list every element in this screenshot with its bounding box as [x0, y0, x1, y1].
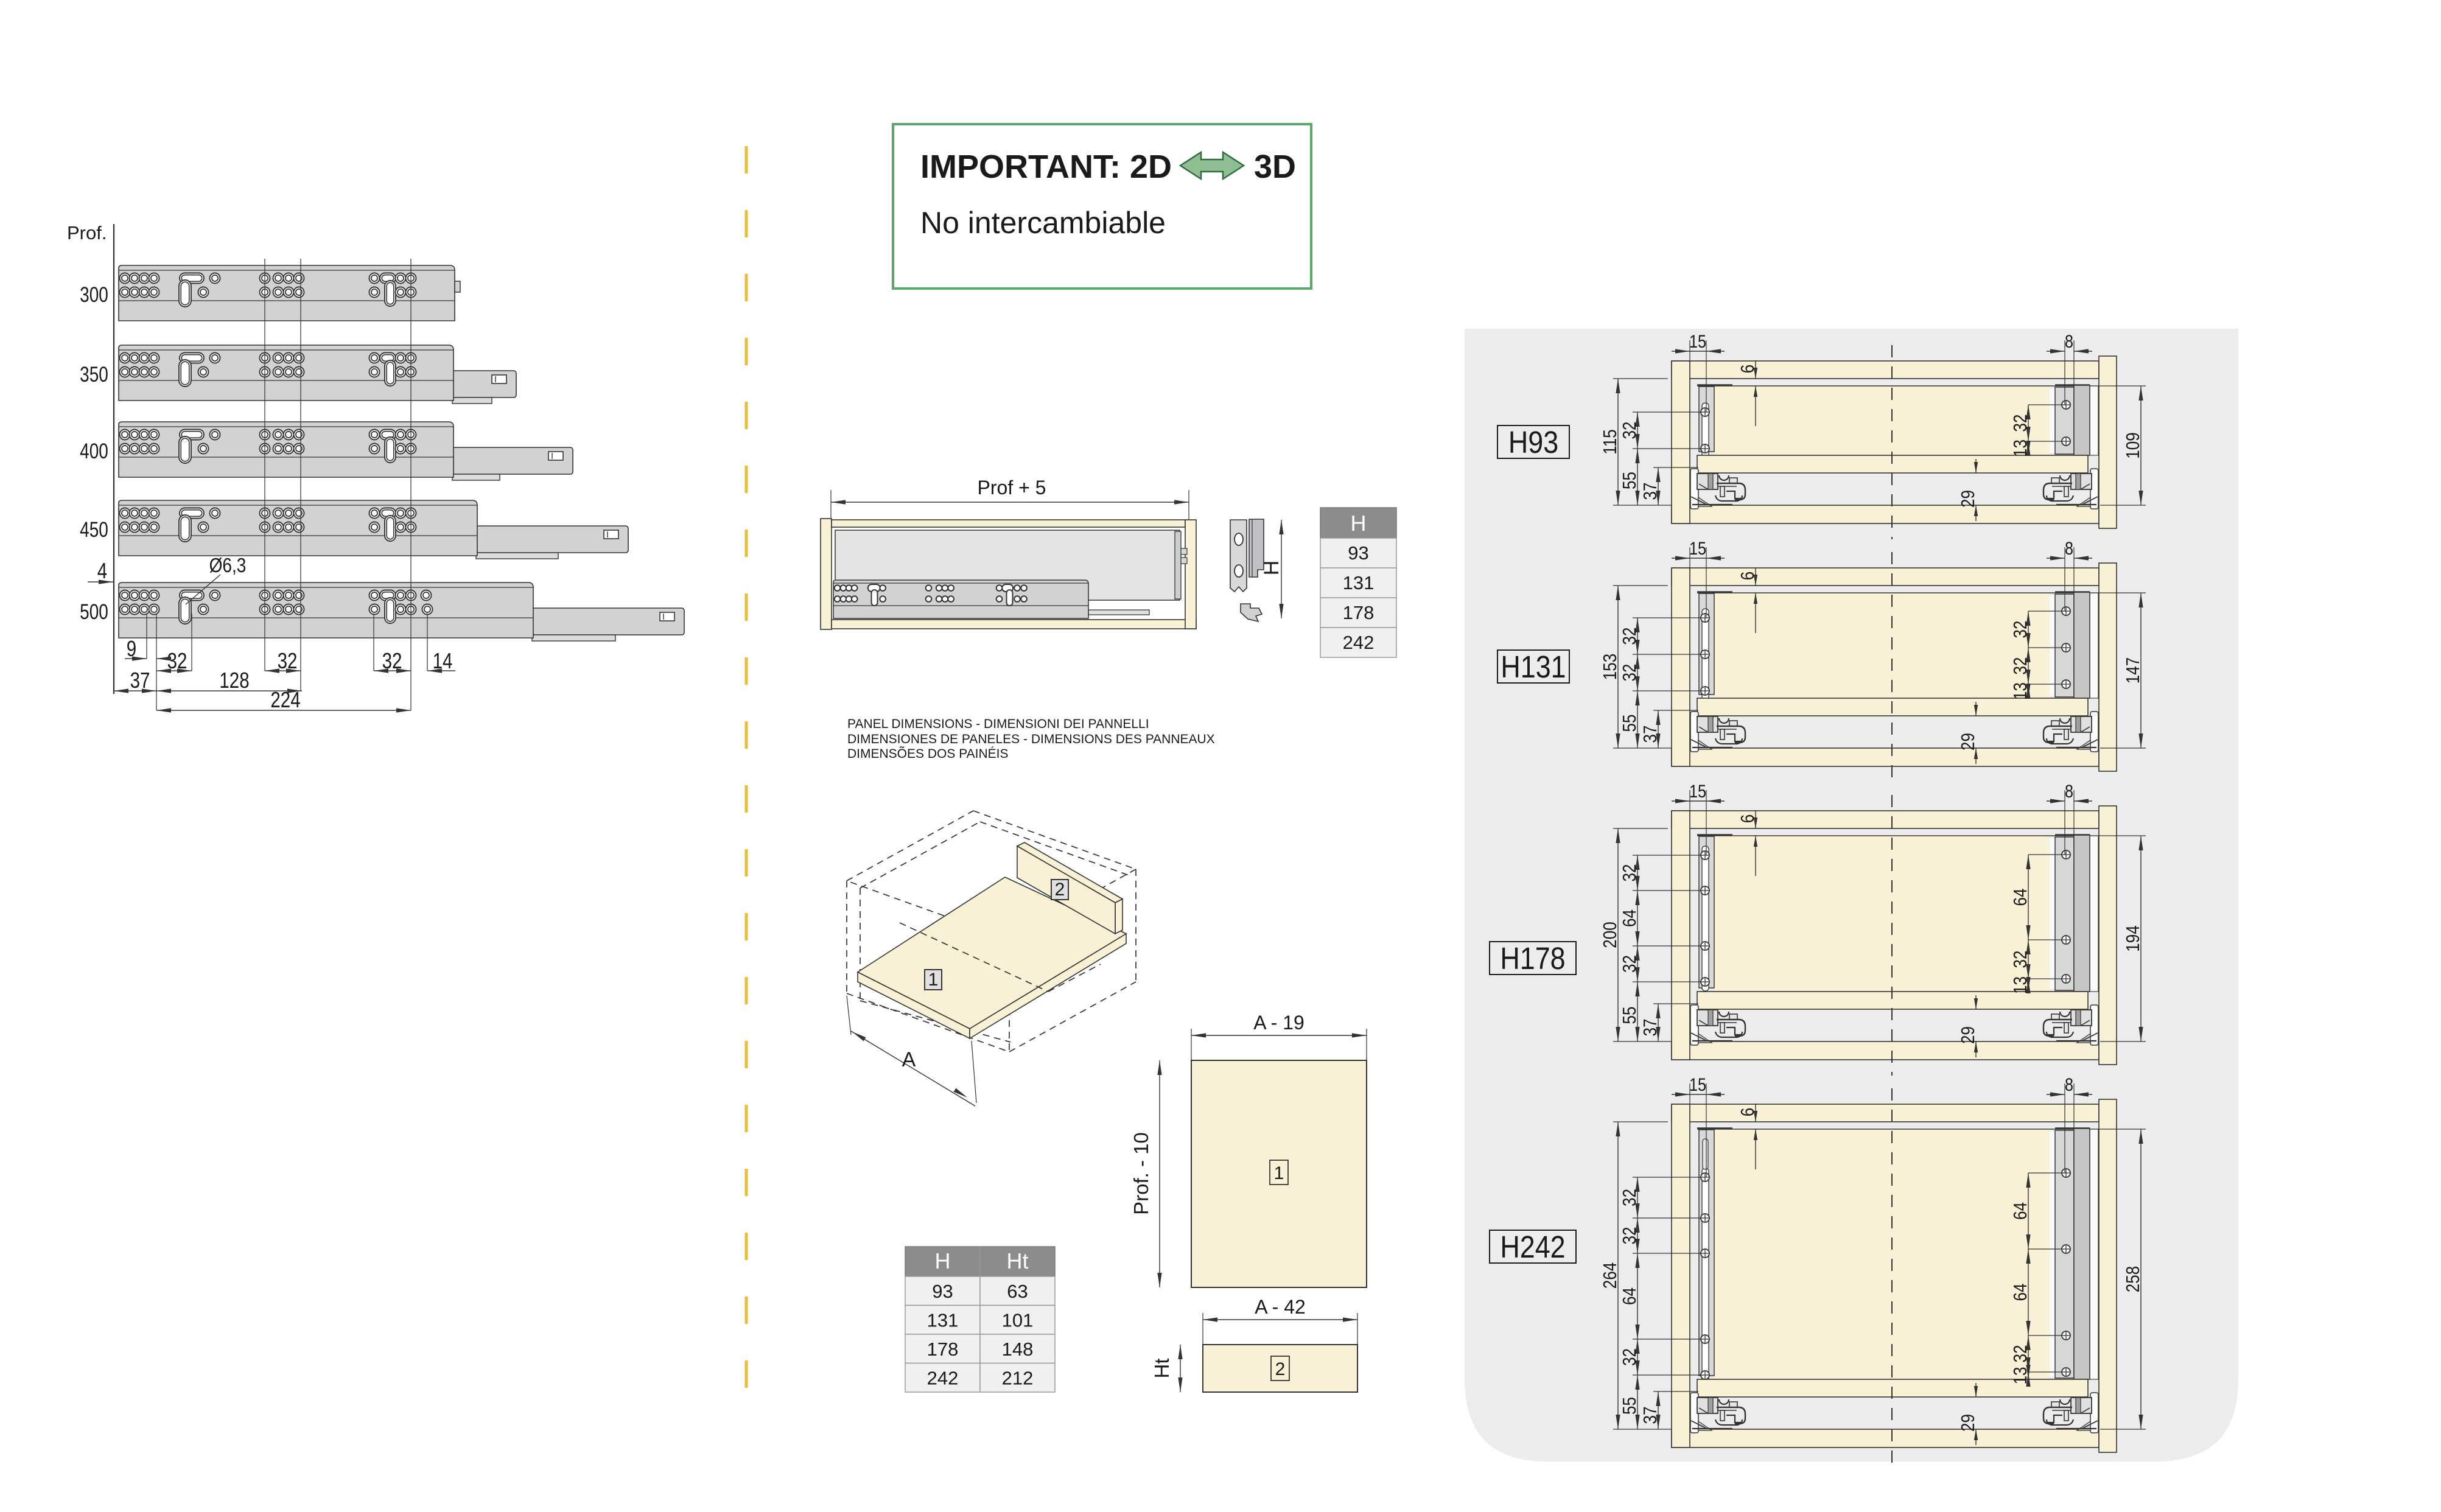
svg-text:64: 64: [2010, 1202, 2031, 1220]
svg-text:148: 148: [1002, 1339, 1034, 1360]
svg-text:55: 55: [1619, 472, 1641, 489]
svg-text:178: 178: [927, 1339, 959, 1360]
svg-text:6: 6: [1737, 365, 1759, 373]
svg-text:15: 15: [1689, 538, 1706, 559]
svg-text:13: 13: [2010, 682, 2031, 700]
svg-text:93: 93: [932, 1281, 953, 1302]
svg-text:Ht: Ht: [1150, 1359, 1173, 1379]
svg-text:32: 32: [2010, 415, 2031, 432]
svg-text:H93: H93: [1508, 425, 1558, 460]
svg-text:Ø6,3: Ø6,3: [209, 555, 247, 577]
svg-text:32: 32: [1619, 1189, 1641, 1206]
svg-text:4: 4: [97, 558, 107, 583]
svg-text:32: 32: [278, 648, 298, 673]
svg-text:153: 153: [1600, 654, 1621, 680]
svg-text:242: 242: [927, 1368, 959, 1389]
svg-text:93: 93: [1348, 542, 1368, 564]
svg-text:131: 131: [927, 1310, 959, 1331]
svg-text:32: 32: [2010, 621, 2031, 639]
svg-text:264: 264: [1600, 1262, 1621, 1289]
svg-text:63: 63: [1007, 1281, 1028, 1302]
svg-text:29: 29: [1958, 1414, 1979, 1432]
svg-text:6: 6: [1737, 1108, 1759, 1116]
svg-text:2: 2: [1055, 880, 1065, 900]
svg-text:DIMENSÕES DOS PAINÉIS: DIMENSÕES DOS PAINÉIS: [847, 746, 1009, 761]
svg-text:A - 42: A - 42: [1255, 1296, 1306, 1318]
svg-text:Prof. - 10: Prof. - 10: [1130, 1132, 1152, 1215]
svg-text:500: 500: [80, 600, 108, 624]
svg-text:8: 8: [2065, 781, 2073, 802]
svg-text:224: 224: [270, 687, 300, 712]
svg-text:2: 2: [1275, 1359, 1286, 1379]
svg-text:H: H: [935, 1248, 951, 1273]
svg-text:H242: H242: [1500, 1230, 1565, 1264]
svg-text:450: 450: [80, 517, 108, 542]
svg-text:H: H: [1351, 511, 1367, 536]
svg-text:1: 1: [1274, 1163, 1284, 1183]
svg-text:14: 14: [433, 648, 453, 673]
svg-text:32: 32: [167, 648, 187, 673]
svg-text:300: 300: [80, 282, 108, 307]
svg-text:15: 15: [1689, 1074, 1706, 1095]
svg-text:194: 194: [2123, 925, 2144, 951]
svg-text:6: 6: [1737, 814, 1759, 823]
svg-text:32: 32: [1619, 955, 1641, 973]
svg-text:Ht: Ht: [1007, 1248, 1029, 1273]
svg-text:200: 200: [1600, 922, 1621, 948]
svg-text:8: 8: [2065, 1074, 2073, 1095]
svg-text:147: 147: [2123, 657, 2144, 684]
svg-text:32: 32: [1619, 664, 1641, 682]
svg-text:8: 8: [2065, 331, 2073, 352]
svg-text:H: H: [1260, 561, 1283, 576]
svg-text:109: 109: [2123, 432, 2144, 458]
svg-text:101: 101: [1002, 1310, 1034, 1331]
svg-text:32: 32: [1619, 864, 1641, 882]
svg-text:37: 37: [1640, 726, 1661, 743]
svg-text:H131: H131: [1501, 650, 1566, 684]
svg-text:29: 29: [1958, 733, 1979, 751]
svg-text:H178: H178: [1500, 942, 1565, 976]
svg-text:29: 29: [1958, 490, 1979, 508]
svg-text:15: 15: [1689, 781, 1706, 802]
svg-text:32: 32: [1619, 422, 1641, 439]
svg-text:400: 400: [80, 439, 108, 463]
svg-text:PANEL DIMENSIONS - DIMENSIONI: PANEL DIMENSIONS - DIMENSIONI DEI PANNEL…: [847, 717, 1149, 731]
svg-text:37: 37: [1640, 1019, 1661, 1037]
svg-text:A - 19: A - 19: [1253, 1012, 1305, 1034]
svg-text:128: 128: [219, 668, 249, 692]
svg-text:No intercambiable: No intercambiable: [920, 206, 1166, 240]
svg-text:64: 64: [2010, 888, 2031, 906]
svg-text:32: 32: [2010, 951, 2031, 968]
svg-text:32: 32: [2010, 1345, 2031, 1363]
svg-text:37: 37: [1640, 483, 1661, 500]
svg-text:13: 13: [2010, 1367, 2031, 1385]
svg-text:A: A: [902, 1048, 916, 1071]
svg-text:37: 37: [1640, 1407, 1661, 1424]
svg-text:Prof.: Prof.: [67, 222, 107, 243]
svg-text:IMPORTANT: 2D: IMPORTANT: 2D: [920, 149, 1172, 185]
svg-text:13: 13: [2010, 439, 2031, 457]
svg-text:1: 1: [928, 970, 939, 990]
svg-text:13: 13: [2010, 976, 2031, 994]
svg-text:32: 32: [1619, 1227, 1641, 1245]
svg-text:55: 55: [1619, 1397, 1641, 1415]
svg-text:258: 258: [2123, 1266, 2144, 1292]
svg-text:55: 55: [1619, 715, 1641, 732]
svg-text:64: 64: [2010, 1283, 2031, 1301]
svg-text:37: 37: [130, 668, 150, 692]
svg-text:64: 64: [1619, 909, 1641, 927]
svg-text:32: 32: [2010, 657, 2031, 675]
svg-text:Prof + 5: Prof + 5: [978, 477, 1046, 499]
svg-text:3D: 3D: [1254, 149, 1296, 185]
svg-text:64: 64: [1619, 1287, 1641, 1305]
svg-text:350: 350: [80, 362, 108, 387]
svg-text:32: 32: [1619, 1348, 1641, 1366]
svg-text:6: 6: [1737, 572, 1759, 580]
svg-text:DIMENSIONES DE PANELES - DIMEN: DIMENSIONES DE PANELES - DIMENSIONS DES …: [847, 732, 1215, 746]
svg-text:32: 32: [1619, 628, 1641, 645]
svg-text:8: 8: [2065, 538, 2073, 559]
svg-text:115: 115: [1600, 429, 1621, 455]
svg-text:242: 242: [1343, 632, 1375, 653]
svg-text:131: 131: [1343, 572, 1375, 593]
svg-text:178: 178: [1343, 602, 1375, 623]
svg-text:212: 212: [1002, 1368, 1034, 1389]
svg-text:55: 55: [1619, 1007, 1641, 1024]
svg-text:29: 29: [1958, 1026, 1979, 1044]
svg-text:15: 15: [1689, 331, 1706, 352]
